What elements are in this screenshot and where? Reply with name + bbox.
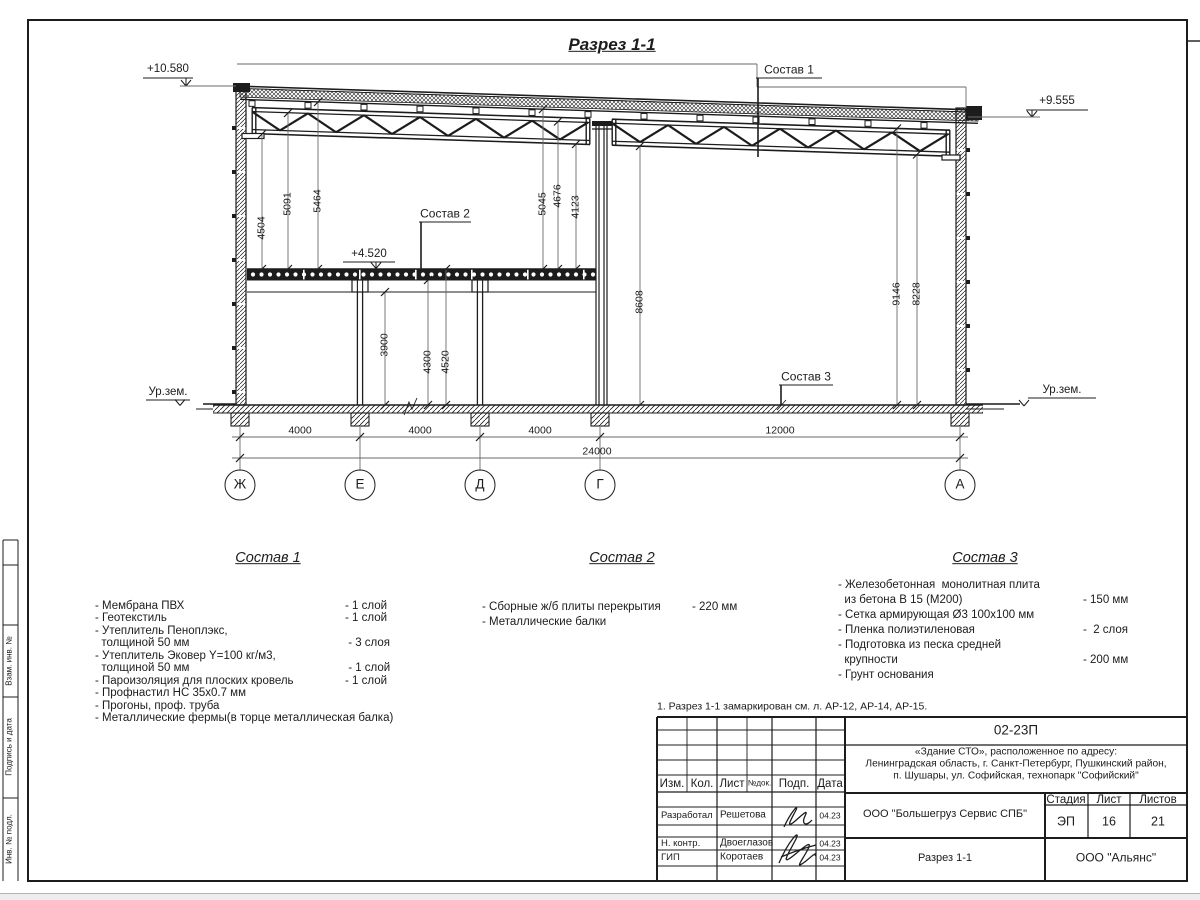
dimension-label: 4504 bbox=[256, 216, 267, 239]
dimension-label: 24000 bbox=[582, 446, 611, 457]
axis-bubble-А: А bbox=[955, 478, 964, 493]
titleblock-stage-label: Стадия bbox=[1046, 794, 1085, 806]
titleblock-sheet-value: 16 bbox=[1102, 815, 1116, 829]
axis-bubble-Е: Е bbox=[355, 478, 364, 493]
sostav-3-leader: Состав 3 bbox=[781, 371, 831, 384]
composition-3-item: крупности bbox=[838, 654, 898, 666]
composition-1-heading: Состав 1 bbox=[235, 551, 300, 567]
composition-3-item: из бетона В 15 (М200) bbox=[838, 594, 963, 606]
titleblock-col-3: Лист bbox=[720, 777, 745, 789]
composition-2-item: - Сборные ж/б плиты перекрытия bbox=[482, 601, 661, 613]
composition-3-item: - Пленка полиэтиленовая bbox=[838, 624, 975, 636]
titleblock-role: Разработал bbox=[661, 811, 713, 821]
dimension-label: 4520 bbox=[440, 350, 451, 373]
composition-3-heading: Состав 3 bbox=[952, 551, 1017, 567]
composition-1-value: - 1 слой bbox=[345, 600, 387, 612]
dimension-label: 5464 bbox=[312, 189, 323, 212]
margin-label-1: Подпись и дата bbox=[6, 718, 15, 776]
titleblock-col-6: Дата bbox=[817, 777, 842, 789]
text-layer: Разрез 1-1 1. Разрез 1-1 замаркирован см… bbox=[0, 0, 1200, 900]
titleblock-date: 04.23 bbox=[819, 811, 840, 820]
titleblock-project-line-1: «Здание СТО», расположенное по адресу: bbox=[915, 746, 1117, 757]
titleblock-doc-number: 02-23П bbox=[994, 724, 1038, 739]
titleblock-role: Н. контр. bbox=[661, 838, 700, 848]
titleblock-name: Двоеглазов bbox=[720, 838, 773, 849]
titleblock-drawing-name: Разрез 1-1 bbox=[918, 853, 972, 865]
titleblock-name: Решетова bbox=[720, 811, 766, 822]
dimension-label: 9146 bbox=[891, 282, 902, 305]
composition-1-item: - Профнастил НС 35х0.7 мм bbox=[95, 687, 246, 699]
composition-3-item: - Сетка армирующая Ø3 100х100 мм bbox=[838, 609, 1034, 621]
composition-3-value: - 150 мм bbox=[1083, 594, 1128, 606]
dimension-label: 4676 bbox=[552, 184, 563, 207]
composition-1-item: толщиной 50 мм bbox=[95, 637, 189, 649]
dimension-label: 8228 bbox=[911, 282, 922, 305]
composition-1-item: - Утеплитель Пеноплэкс, bbox=[95, 625, 228, 637]
dimension-label: 5045 bbox=[537, 192, 548, 215]
dimension-label: 3900 bbox=[379, 333, 390, 356]
titleblock-sheets-value: 21 bbox=[1151, 815, 1165, 829]
dimension-label: 12000 bbox=[765, 425, 794, 436]
composition-3-item: - Железобетонная монолитная плита bbox=[838, 579, 1040, 591]
dimension-label: 4000 bbox=[288, 425, 311, 436]
composition-1-item: - Пароизоляция для плоских кровель bbox=[95, 674, 294, 686]
axis-bubble-Г: Г bbox=[596, 478, 603, 493]
axis-bubble-Ж: Ж bbox=[234, 478, 246, 493]
ground-level-right: Ур.зем. bbox=[1042, 384, 1081, 396]
composition-3-item: - Подготовка из песка средней bbox=[838, 639, 1001, 651]
composition-1-item: - Утеплитель Эковер Y=100 кг/м3, bbox=[95, 650, 276, 662]
titleblock-date: 04.23 bbox=[819, 853, 840, 862]
sostav-1-leader: Состав 1 bbox=[764, 64, 814, 77]
dimension-label: 4300 bbox=[422, 350, 433, 373]
titleblock-company: ООО "Альянс" bbox=[1076, 852, 1156, 865]
composition-3-value: - 2 слоя bbox=[1083, 624, 1128, 636]
dimension-label: 4000 bbox=[528, 425, 551, 436]
page-bottom-edge bbox=[0, 893, 1200, 900]
elevation-top-left: +10.580 bbox=[147, 63, 189, 75]
composition-1-item: - Металлические фермы(в торце металличес… bbox=[95, 712, 393, 724]
page-title: Разрез 1-1 bbox=[568, 36, 655, 54]
titleblock-project-line-2: Ленинградская область, г. Санкт-Петербур… bbox=[865, 758, 1166, 769]
sheet: Разрез 1-1 1. Разрез 1-1 замаркирован см… bbox=[0, 0, 1200, 900]
margin-label-0: Взам. инв. № bbox=[6, 636, 15, 686]
titleblock-date: 04.23 bbox=[819, 839, 840, 848]
titleblock-project-line-3: п. Шушары, ул. Софийская, технопарк "Соф… bbox=[893, 770, 1138, 781]
sostav-2-leader: Состав 2 bbox=[420, 208, 470, 221]
elevation-top-right: +9.555 bbox=[1039, 95, 1075, 107]
composition-1-value: - 3 слоя bbox=[345, 637, 390, 649]
composition-1-value: - 1 слой bbox=[345, 612, 387, 624]
titleblock-col-4: №док. bbox=[748, 779, 771, 788]
composition-1-item: толщиной 50 мм bbox=[95, 662, 189, 674]
axis-bubble-Д: Д bbox=[475, 478, 484, 493]
titleblock-name: Коротаев bbox=[720, 853, 763, 864]
dimension-label: 8608 bbox=[634, 290, 645, 313]
composition-2-item: - Металлические балки bbox=[482, 616, 606, 628]
titleblock-stage-value: ЭП bbox=[1057, 815, 1075, 829]
dimension-label: 4000 bbox=[408, 425, 431, 436]
titleblock-client: ООО "Большегруз Сервис СПБ" bbox=[863, 809, 1027, 821]
composition-3-item: - Грунт основания bbox=[838, 669, 934, 681]
composition-1-value: - 1 слой bbox=[345, 662, 390, 674]
margin-label-2: Инв. № подл. bbox=[6, 814, 15, 864]
titleblock-col-1: Изм. bbox=[660, 777, 685, 789]
titleblock-role: ГИП bbox=[661, 853, 680, 863]
composition-1-item: - Прогоны, проф. труба bbox=[95, 699, 219, 711]
titleblock-sheets-label: Листов bbox=[1139, 794, 1176, 806]
composition-1-value: - 1 слой bbox=[345, 674, 387, 686]
note-text: 1. Разрез 1-1 замаркирован см. л. АР-12,… bbox=[657, 701, 927, 712]
elevation-floor: +4.520 bbox=[351, 248, 387, 260]
titleblock-sheet-label: Лист bbox=[1097, 794, 1122, 806]
composition-2-value: - 220 мм bbox=[692, 601, 737, 613]
dimension-label: 5091 bbox=[282, 192, 293, 215]
titleblock-col-5: Подп. bbox=[779, 777, 810, 789]
dimension-label: 4123 bbox=[570, 195, 581, 218]
titleblock-col-2: Кол. bbox=[691, 777, 714, 789]
composition-3-value: - 200 мм bbox=[1083, 654, 1128, 666]
composition-2-heading: Состав 2 bbox=[589, 551, 654, 567]
composition-1-item: - Мембрана ПВХ bbox=[95, 600, 184, 612]
composition-1-item: - Геотекстиль bbox=[95, 612, 167, 624]
ground-level-left: Ур.зем. bbox=[148, 386, 187, 398]
